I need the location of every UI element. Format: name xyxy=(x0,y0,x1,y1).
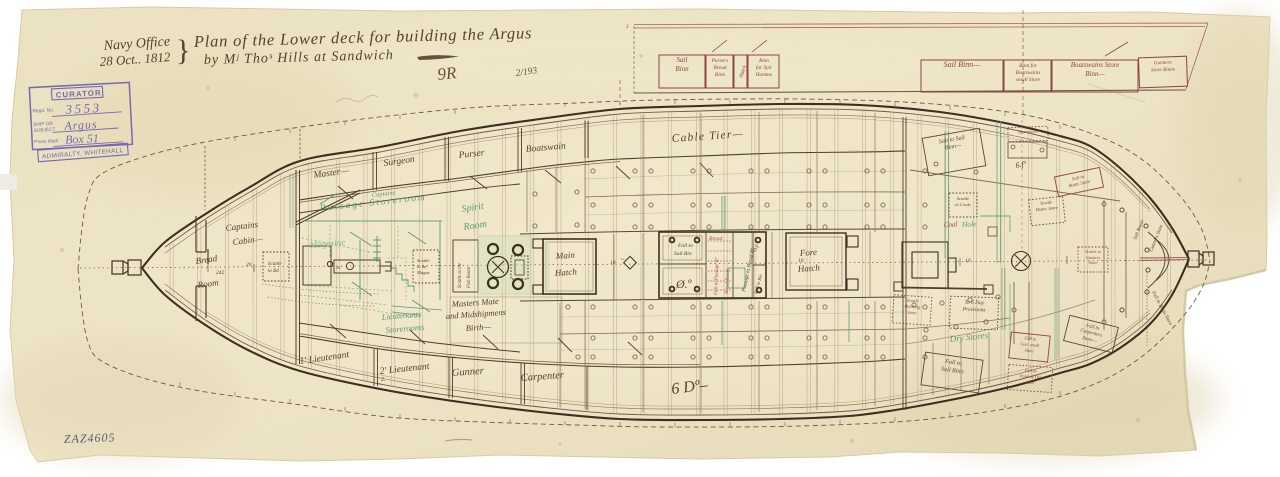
svg-text:Gunner: Gunner xyxy=(451,366,485,379)
svg-text:small Store: small Store xyxy=(1016,77,1041,83)
svg-text:Gunners: Gunners xyxy=(1154,60,1172,67)
svg-text:↔: ↔ xyxy=(620,256,626,262)
svg-text:26: 26 xyxy=(336,265,341,270)
svg-text:Hammocks: Hammocks xyxy=(1017,129,1038,135)
svg-text:SHIP OR: SHIP OR xyxy=(33,121,53,128)
svg-text:Provisions: Provisions xyxy=(962,307,986,314)
svg-text:Sail Bin: Sail Bin xyxy=(674,251,692,257)
svg-text:Scuttle to the: Scuttle to the xyxy=(458,262,463,288)
svg-text:Binn for: Binn for xyxy=(1019,62,1038,69)
svg-text:Hammo: Hammo xyxy=(755,72,773,78)
svg-text:Boatswains Store: Boatswains Store xyxy=(1071,61,1120,69)
svg-text:10: 10 xyxy=(610,260,616,266)
svg-text:Pursers: Pursers xyxy=(711,58,729,64)
svg-text:Hatch: Hatch xyxy=(553,266,577,278)
svg-text:Sail: Sail xyxy=(677,56,688,64)
svg-text:Ø.º: Ø.º xyxy=(675,277,692,291)
svg-text:Fall to: Fall to xyxy=(1023,368,1037,374)
svg-text:Scuttle: Scuttle xyxy=(268,262,282,267)
svg-text:Store Binns: Store Binns xyxy=(1151,67,1175,74)
svg-text:}: } xyxy=(176,34,190,67)
svg-text:Coal: Coal xyxy=(944,220,958,229)
svg-text:2.: 2. xyxy=(381,377,386,383)
svg-text:Binn: Binn xyxy=(675,65,689,73)
svg-text:for Spir: for Spir xyxy=(756,64,773,71)
svg-text:to the: to the xyxy=(417,264,427,269)
svg-text:Bread: Bread xyxy=(714,65,727,71)
svg-text:Magaz: Magaz xyxy=(416,270,430,275)
svg-text:10: 10 xyxy=(965,258,971,264)
svg-text:ZAZ4605: ZAZ4605 xyxy=(64,430,116,446)
svg-text:Scuttle: Scuttle xyxy=(417,258,430,263)
svg-text:To 6 Day: To 6 Day xyxy=(964,300,984,307)
svg-text:Regd. No.: Regd. No. xyxy=(32,107,54,114)
svg-text:Scuttle: Scuttle xyxy=(957,196,970,201)
svg-text:SUBJECT: SUBJECT xyxy=(33,127,55,134)
svg-text:6.fº: 6.fº xyxy=(1015,159,1028,170)
svg-text:Store: Store xyxy=(907,310,916,316)
svg-text:Store: Store xyxy=(1025,380,1034,386)
svg-text:10: 10 xyxy=(798,258,804,264)
svg-text:Main: Main xyxy=(554,250,575,261)
svg-text:Binn: Binn xyxy=(759,58,769,64)
svg-text:Store: Store xyxy=(1024,348,1034,354)
svg-text:Binn—: Binn— xyxy=(1085,70,1105,78)
svg-text:Hole: Hole xyxy=(961,219,978,229)
svg-text:Hatch: Hatch xyxy=(796,262,820,274)
svg-text:to Bd: to Bd xyxy=(268,269,279,274)
svg-text:to Coals: to Coals xyxy=(955,202,971,207)
svg-text:Fish Room: Fish Room xyxy=(467,267,472,289)
svg-text:Binn: Binn xyxy=(715,72,725,78)
svg-text:Scuttle to: Scuttle to xyxy=(1085,249,1101,254)
svg-text:9R: 9R xyxy=(436,63,457,84)
svg-text:20: 20 xyxy=(246,262,252,268)
svg-text:Fore: Fore xyxy=(798,247,817,258)
svg-text:Birth—: Birth— xyxy=(465,321,491,333)
svg-text:Bread: Bread xyxy=(709,236,722,242)
svg-text:242: 242 xyxy=(216,269,225,276)
svg-text:Scuttle: Scuttle xyxy=(907,298,919,304)
svg-text:Store: Store xyxy=(1089,260,1098,265)
svg-text:Fall to: Fall to xyxy=(677,243,693,249)
svg-text:Boatswains: Boatswains xyxy=(1016,70,1041,76)
svg-text:Sail Binn—: Sail Binn— xyxy=(944,60,982,69)
